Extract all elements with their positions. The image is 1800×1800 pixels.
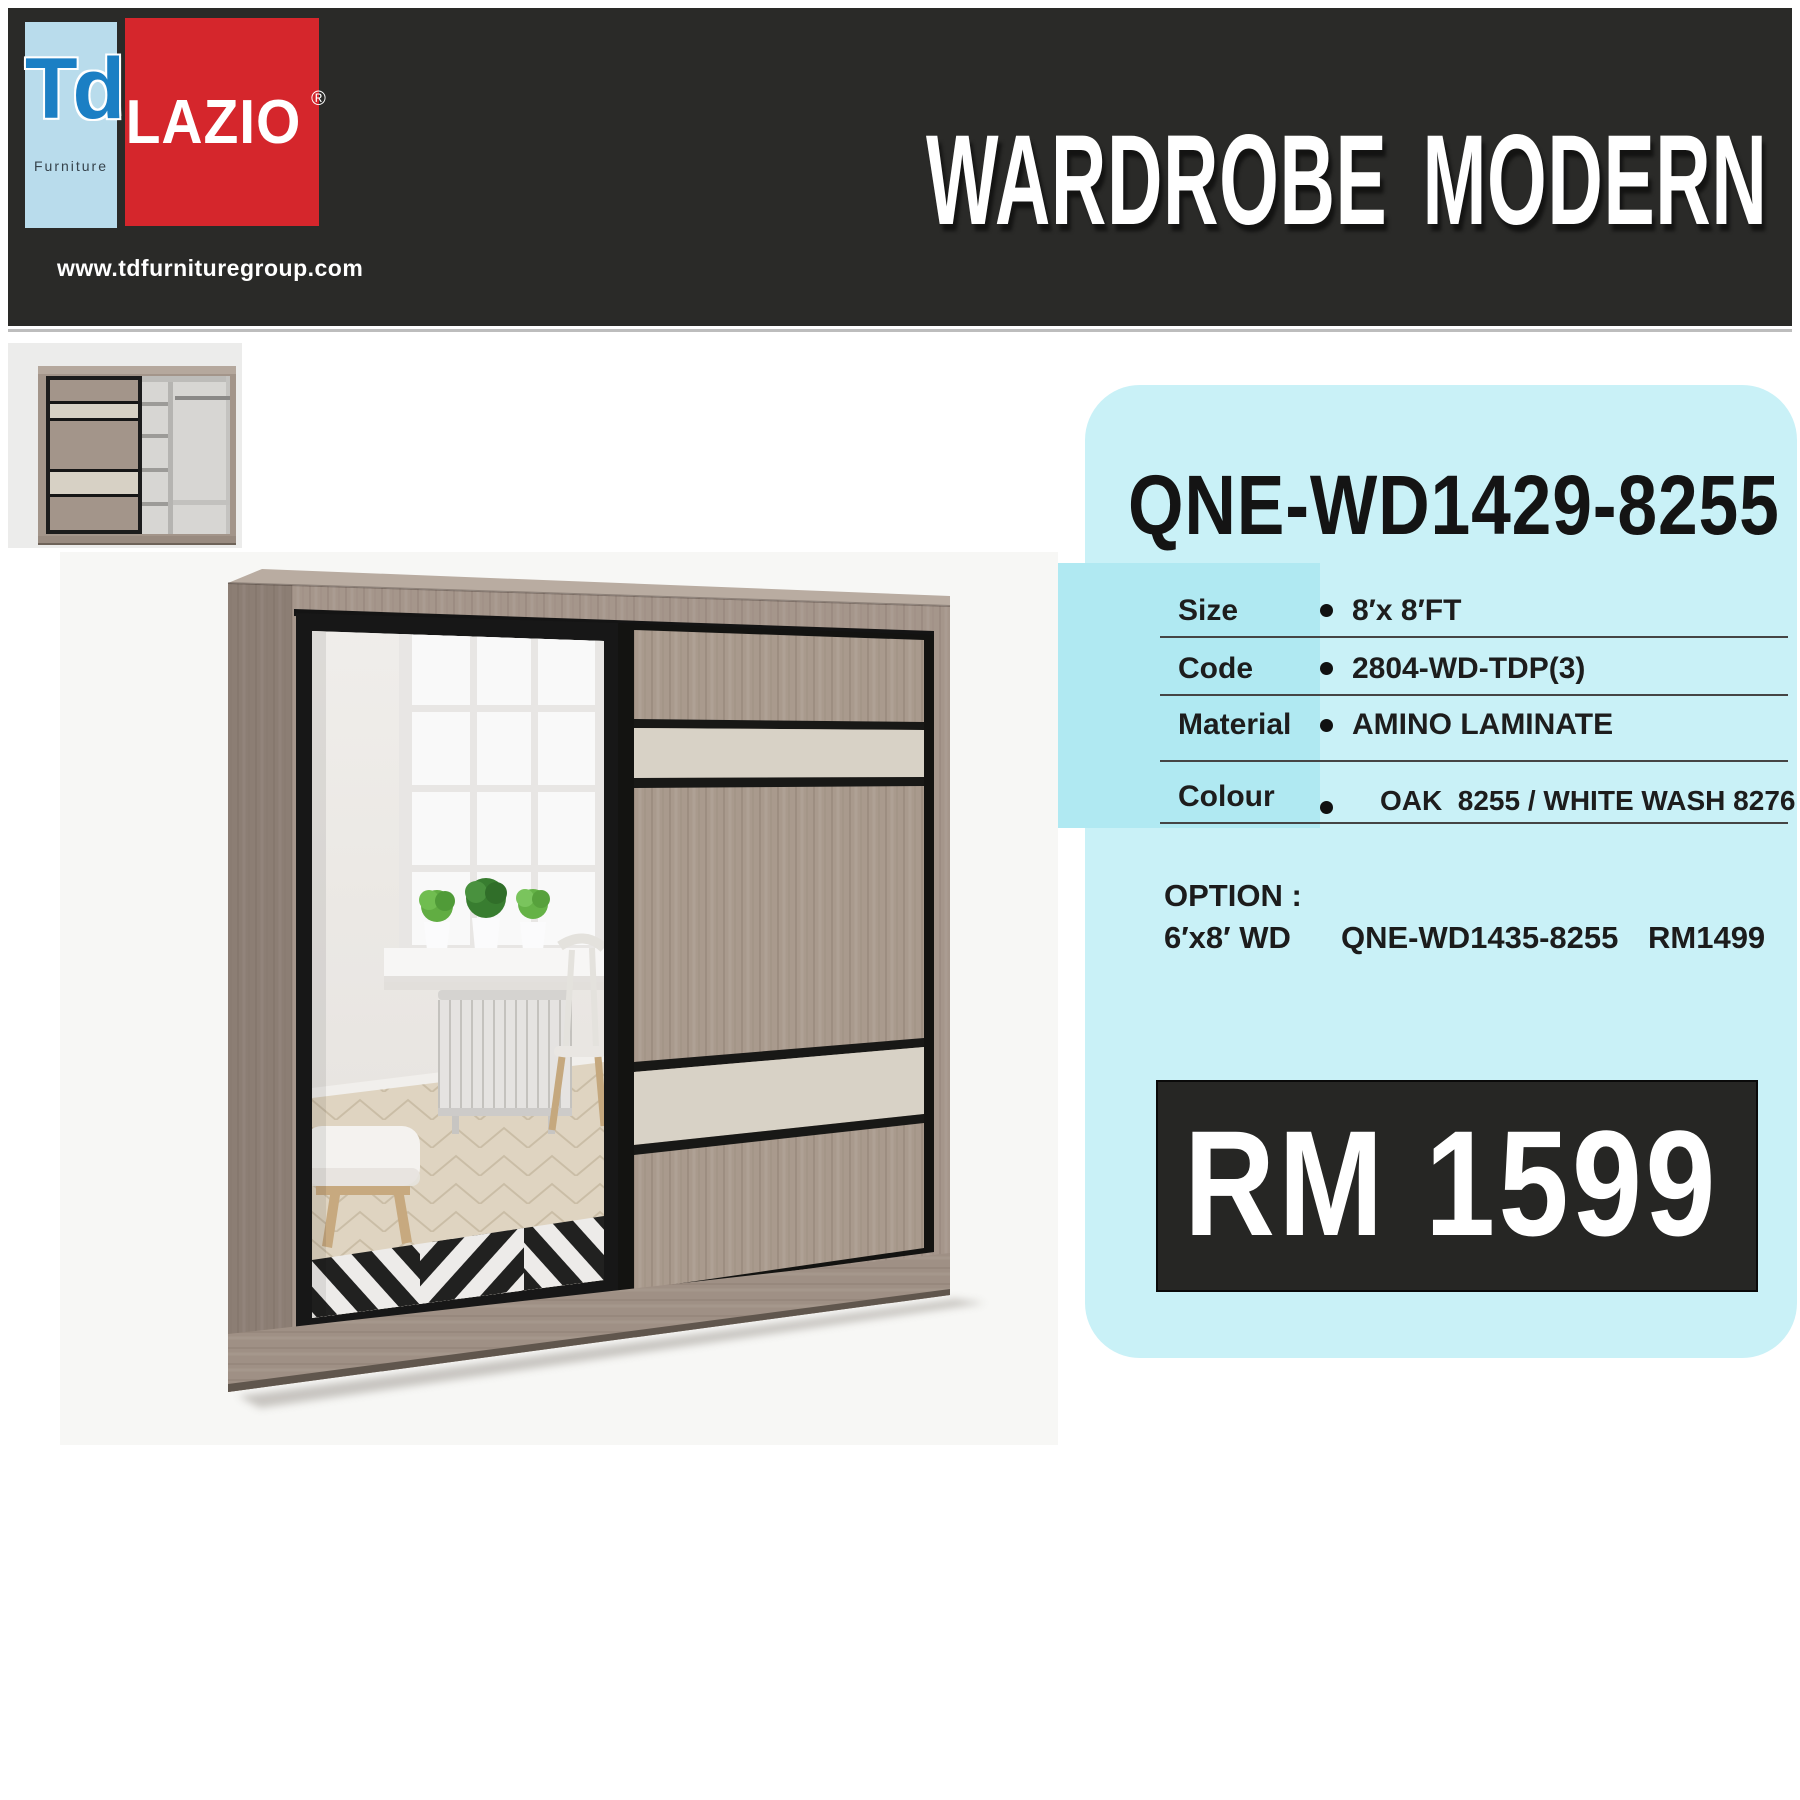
lazio-logo: LAZIO ® — [125, 18, 319, 226]
registered-mark: ® — [311, 88, 326, 111]
spec-label-material: Material — [1178, 707, 1291, 743]
product-image — [60, 552, 1060, 1447]
lazio-logo-text: LAZIO — [126, 87, 302, 158]
td-logo-subtext: Furniture — [25, 158, 117, 174]
spec-divider — [1160, 760, 1788, 762]
model-code: QNE-WD1429-8255 — [1128, 463, 1780, 547]
page-title: WARDROBE MODERN — [926, 117, 1767, 245]
flyer-page: Td Furniture LAZIO ® www.tdfurnituregrou… — [0, 0, 1800, 1800]
spec-value-size: 8′x 8′FT — [1352, 593, 1461, 629]
spec-value-material: AMINO LAMINATE — [1352, 707, 1613, 743]
thumbnail-image — [8, 343, 242, 548]
spec-value-colour: OAK 8255 / WHITE WASH 8276 — [1380, 784, 1795, 818]
spec-value-code: 2804-WD-TDP(3) — [1352, 651, 1585, 687]
price-text: RM 1599 — [1184, 1108, 1719, 1258]
option-price: RM1499 — [1648, 919, 1765, 956]
bullet-icon — [1320, 801, 1333, 814]
spec-label-size: Size — [1178, 593, 1238, 629]
spec-divider — [1160, 636, 1788, 638]
spec-divider — [1160, 822, 1788, 824]
td-furniture-logo: Td Furniture — [25, 22, 117, 228]
bullet-icon — [1320, 662, 1333, 675]
option-heading: OPTION : — [1164, 877, 1302, 914]
header-divider — [8, 329, 1792, 332]
bullet-icon — [1320, 604, 1333, 617]
header-bar: Td Furniture LAZIO ® www.tdfurnituregrou… — [8, 8, 1792, 326]
spec-label-colour: Colour — [1178, 779, 1275, 815]
spec-label-code: Code — [1178, 651, 1253, 687]
option-model: QNE-WD1435-8255 — [1341, 919, 1618, 956]
td-logo-text: Td — [25, 46, 117, 132]
website-url: www.tdfurnituregroup.com — [57, 255, 363, 282]
bullet-icon — [1320, 719, 1333, 732]
option-size: 6′x8′ WD — [1164, 919, 1291, 956]
spec-divider — [1160, 694, 1788, 696]
